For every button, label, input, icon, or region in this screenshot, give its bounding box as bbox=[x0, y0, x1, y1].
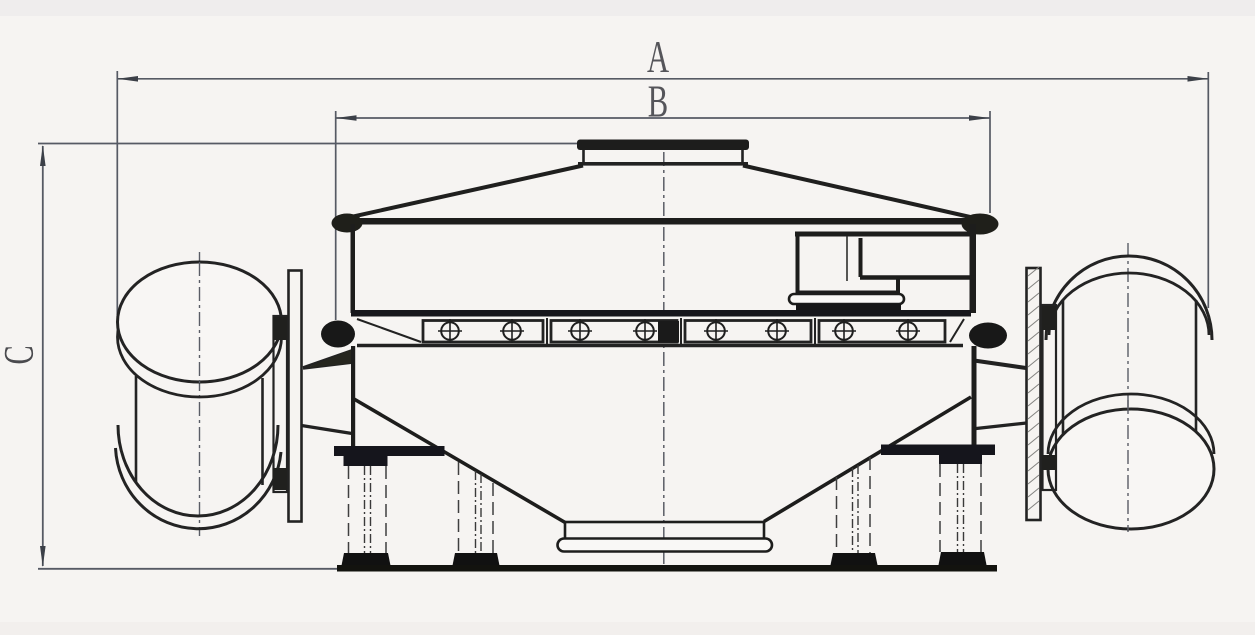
svg-text:A: A bbox=[647, 33, 669, 82]
svg-text:C: C bbox=[0, 345, 42, 364]
svg-text:B: B bbox=[648, 78, 668, 127]
